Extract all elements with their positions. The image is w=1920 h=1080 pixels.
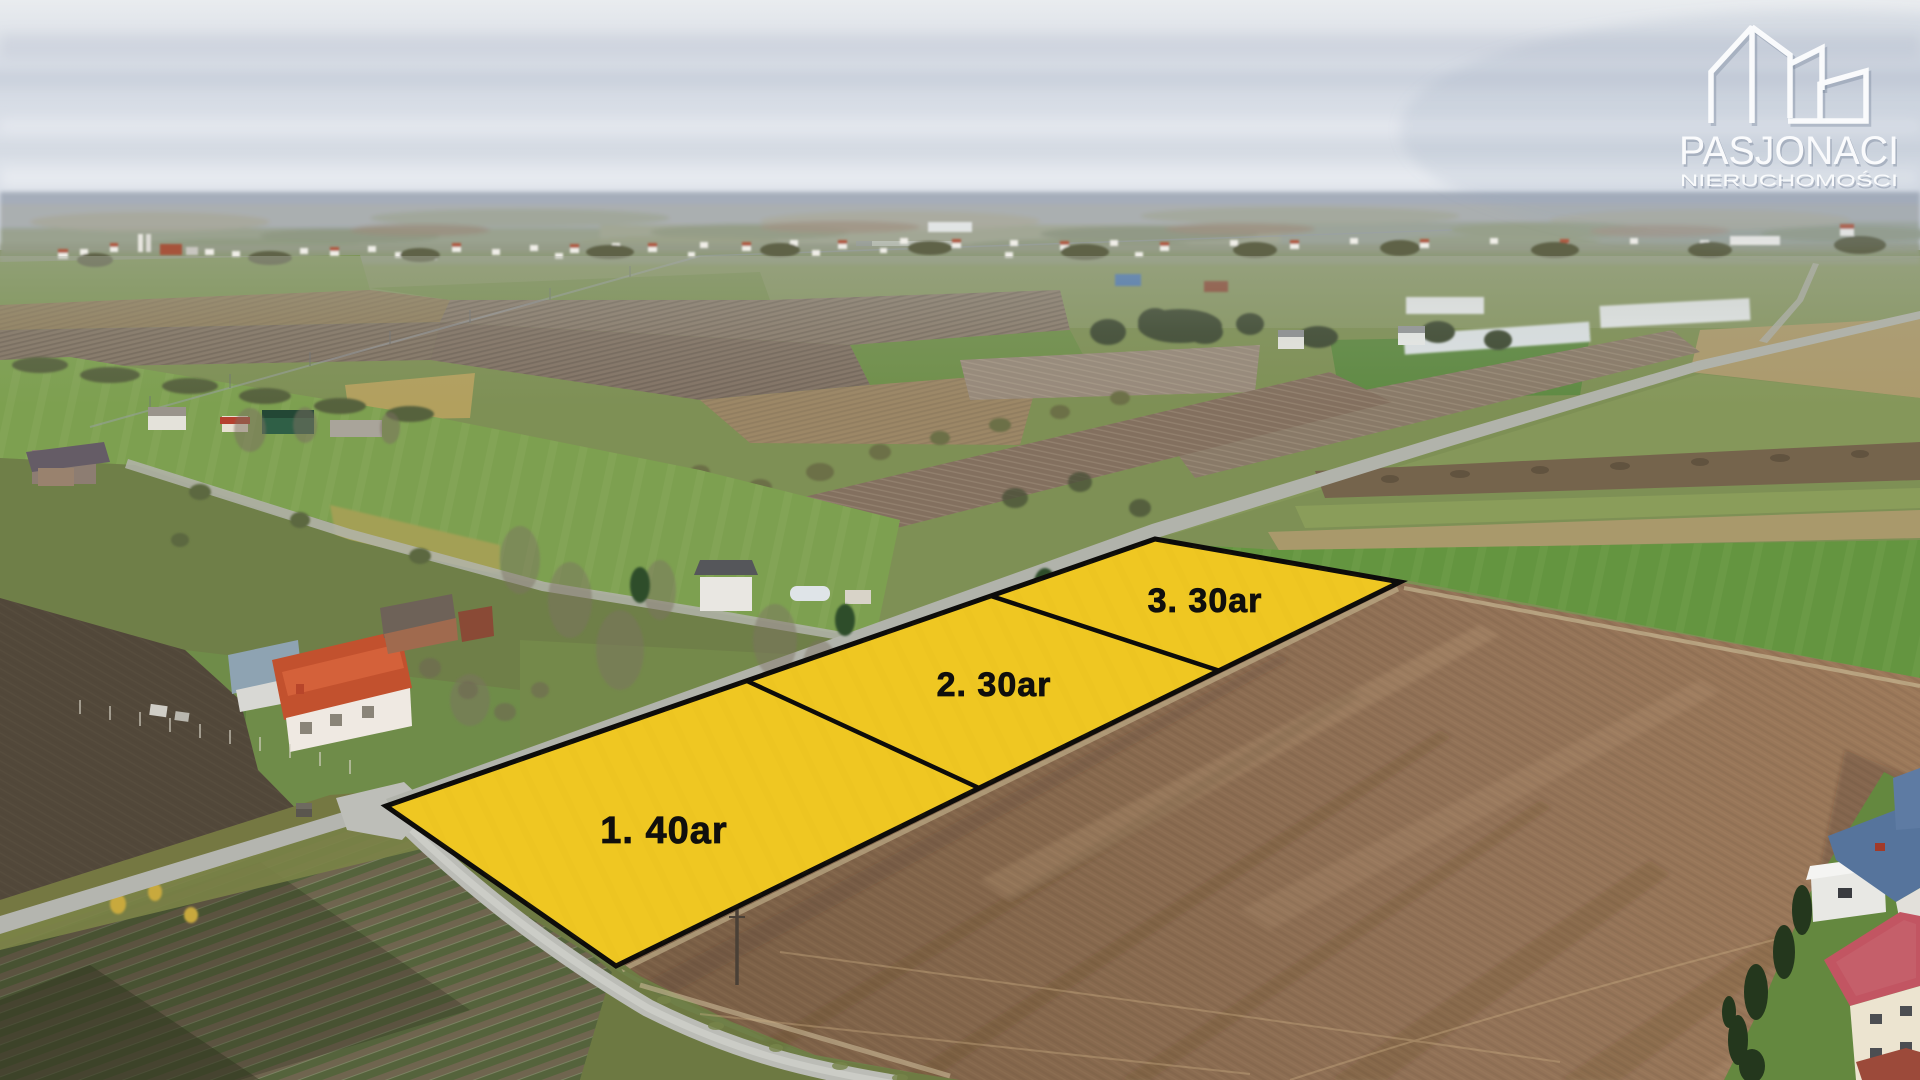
svg-text:PASJONACI: PASJONACI bbox=[1679, 129, 1899, 173]
svg-text:1. 40ar: 1. 40ar bbox=[600, 810, 727, 852]
svg-text:2. 30ar: 2. 30ar bbox=[937, 666, 1052, 704]
svg-text:NIERUCHOMOŚCI: NIERUCHOMOŚCI bbox=[1680, 171, 1898, 190]
svg-text:3. 30ar: 3. 30ar bbox=[1148, 582, 1263, 620]
